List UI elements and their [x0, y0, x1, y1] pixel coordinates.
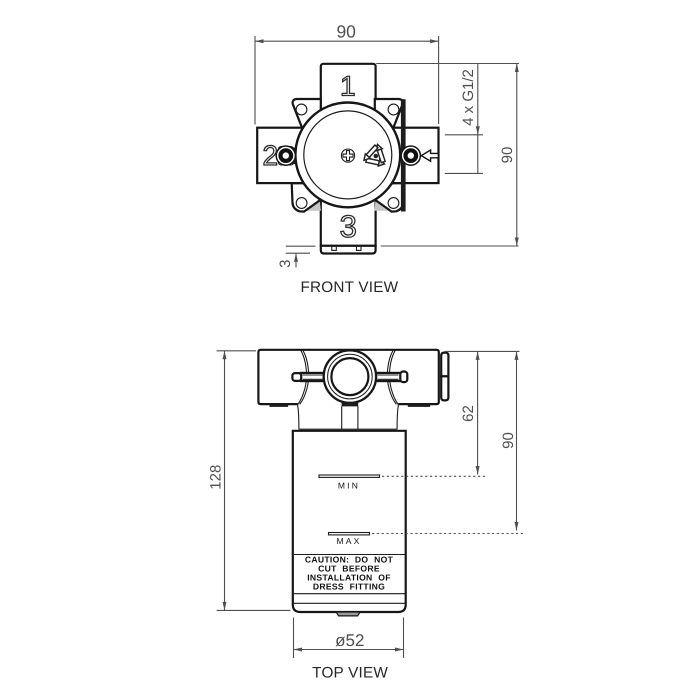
svg-text:62: 62 [460, 405, 477, 422]
svg-text:4 x G1/2: 4 x G1/2 [460, 69, 477, 126]
svg-text:2: 2 [263, 140, 279, 171]
svg-text:MAX: MAX [336, 536, 361, 546]
svg-text:3: 3 [277, 260, 294, 268]
svg-text:1: 1 [340, 71, 356, 102]
svg-text:90: 90 [499, 147, 516, 164]
svg-text:MIN: MIN [338, 481, 360, 491]
svg-text:128: 128 [208, 465, 225, 490]
svg-text:FRONT VIEW: FRONT VIEW [301, 279, 399, 296]
svg-text:90: 90 [336, 21, 356, 41]
svg-text:TOP VIEW: TOP VIEW [312, 665, 388, 682]
svg-text:3: 3 [340, 209, 357, 244]
svg-text:DRESS FITTING: DRESS FITTING [313, 582, 385, 592]
svg-text:90: 90 [500, 432, 517, 449]
svg-text:ø52: ø52 [335, 631, 364, 650]
